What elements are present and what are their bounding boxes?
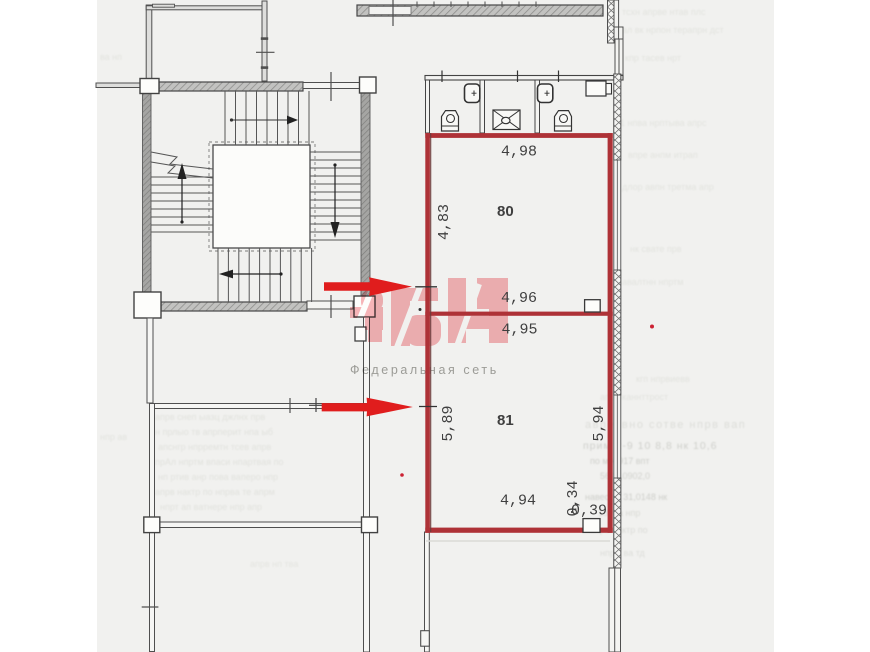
svg-text:апрв нп тва: апрв нп тва bbox=[250, 559, 298, 569]
svg-text:1 нпва нрптыва апрс: 1 нпва нрптыва апрс bbox=[620, 118, 707, 128]
svg-text:4,95: 4,95 bbox=[502, 322, 538, 339]
svg-text:0,34: 0,34 bbox=[565, 480, 582, 516]
svg-text:4,94: 4,94 bbox=[500, 493, 536, 510]
svg-text:н прлыо тв апрперит нпа ыб: н прлыо тв апрперит нпа ыб bbox=[155, 427, 273, 437]
svg-text:прАл нпртм впаси нпартвая по: прАл нпртм впаси нпартвая по bbox=[155, 457, 284, 467]
svg-text:кпр тасев нрт: кпр тасев нрт bbox=[625, 53, 681, 63]
svg-text:апснгр нпрремтн тсев апрв: апснгр нпрремтн тсев апрв bbox=[158, 442, 271, 452]
svg-text:апрв нактр по нпрва те апрм: апрв нактр по нпрва те апрм bbox=[155, 487, 275, 497]
svg-text:ал вк нрпон терапрн дст: ал вк нрпон терапрн дст bbox=[622, 25, 724, 35]
svg-text:нпрм ва тд: нпрм ва тд bbox=[600, 548, 646, 558]
svg-text:тсхн апрве нтав плс: тсхн апрве нтав плс bbox=[622, 7, 706, 17]
svg-text:4,96: 4,96 bbox=[501, 290, 537, 307]
svg-text:нпр ав: нпр ав bbox=[100, 432, 127, 442]
svg-text:5,89: 5,89 bbox=[440, 405, 457, 441]
svg-text:56 810902,0: 56 810902,0 bbox=[600, 471, 650, 481]
svg-text:навес т7 31,0148 нк: навес т7 31,0148 нк bbox=[585, 492, 667, 502]
svg-text:ва нп: ва нп bbox=[100, 52, 122, 62]
svg-text:кгп нпрвиевв: кгп нпрвиевв bbox=[636, 374, 690, 384]
svg-text:80: 80 bbox=[497, 203, 514, 220]
svg-text:Федеральная сеть: Федеральная сеть bbox=[350, 363, 499, 377]
svg-text:4,98: 4,98 bbox=[501, 144, 537, 161]
svg-text:нпрт ап ватнере нпр апр: нпрт ап ватнере нпр апр bbox=[160, 502, 262, 512]
svg-text:длор авпн третма апр: длор авпн третма апр bbox=[622, 182, 714, 192]
svg-text:авалтнн нпртм: авалтнн нпртм bbox=[622, 277, 683, 287]
svg-text:впре анпм итрап: впре анпм итрап bbox=[628, 150, 698, 160]
svg-text:нк свате прв: нк свате прв bbox=[630, 244, 682, 254]
svg-text:апрв снеп ыазц джлнх прв: апрв снеп ыазц джлнх прв bbox=[155, 412, 266, 422]
svg-text:нп ртив анр пова ваперо нпр: нп ртив анр пова ваперо нпр bbox=[158, 472, 278, 482]
svg-text:4,83: 4,83 bbox=[436, 204, 453, 240]
svg-text:5,94: 5,94 bbox=[591, 405, 608, 441]
svg-text:81: 81 bbox=[497, 412, 514, 429]
